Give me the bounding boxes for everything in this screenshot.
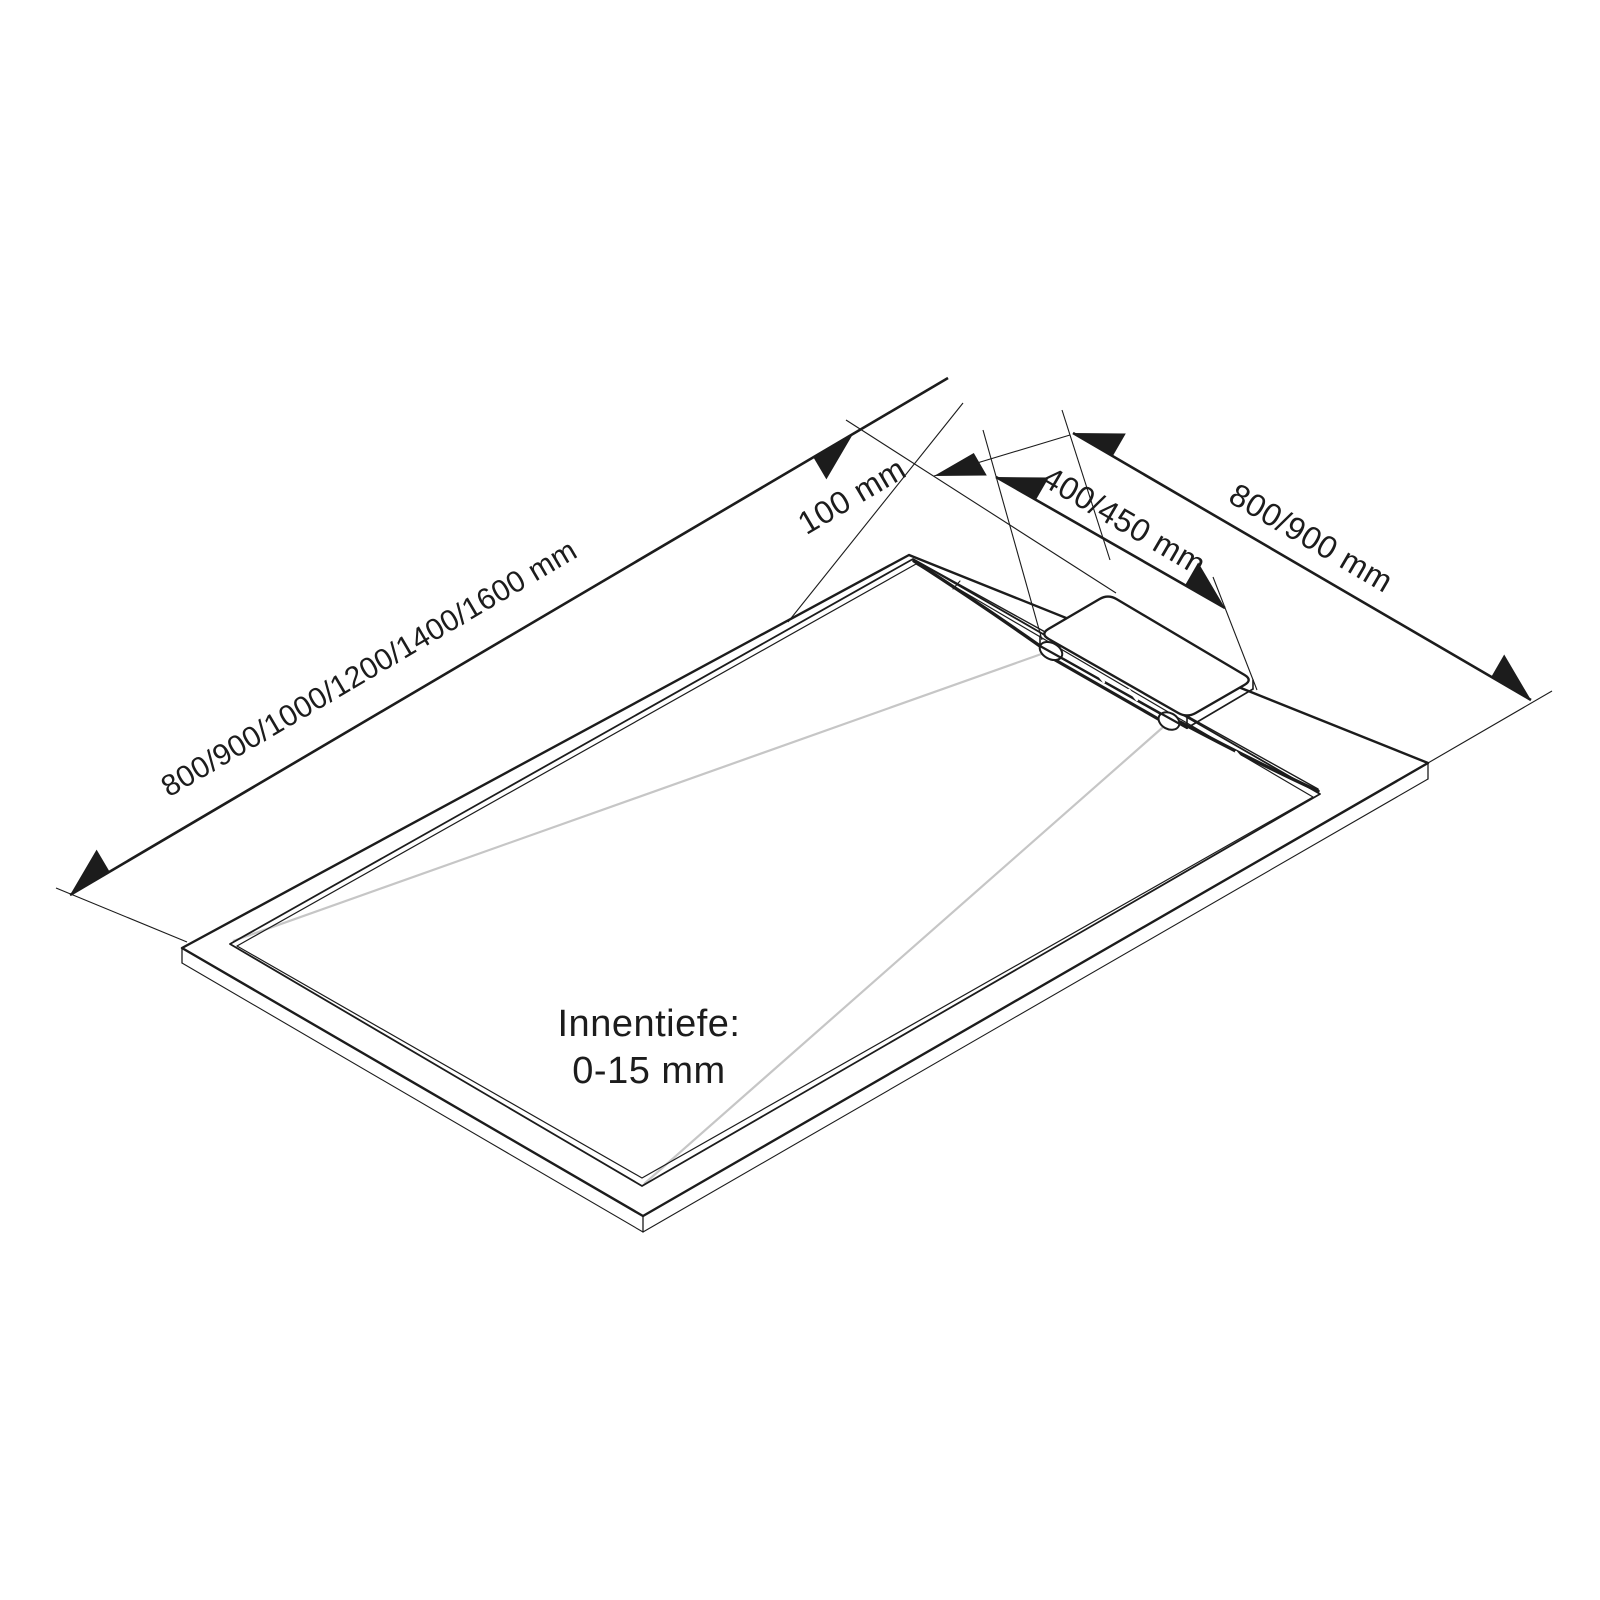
dim-label-drain-offset: 100 mm (791, 450, 911, 541)
tray-bottom-edge-right (643, 779, 1428, 1232)
drain-right-wing-lower-edge (1180, 722, 1318, 791)
arrow-width-right (1491, 655, 1531, 701)
ext-line-east-corner (1428, 691, 1552, 763)
dimension-arrowheads (70, 433, 1531, 895)
drain-cover-plate (1044, 597, 1248, 716)
arrow-length-north (813, 434, 853, 479)
dim-label-width: 800/900 mm (1223, 476, 1399, 599)
shower-tray-diagram: 800/900/1000/1200/1400/1600 mm 100 mm 40… (0, 0, 1600, 1600)
technical-drawing-page: 800/900/1000/1200/1400/1600 mm 100 mm 40… (0, 0, 1600, 1600)
ext-line-west-corner (56, 888, 187, 942)
inner-depth-note: Innentiefe: 0-15 mm (558, 1003, 741, 1092)
slope-fold-lines (233, 652, 1170, 1184)
arrow-width-left (1073, 433, 1126, 456)
dim-label-length: 800/900/1000/1200/1400/1600 mm (156, 534, 583, 804)
drain-left-wing-lower-edge (914, 561, 1047, 651)
extension-lines (56, 403, 1552, 942)
drain-right-wing-top-edge (1180, 712, 1318, 789)
fold-line-to-bottom-corner (644, 721, 1170, 1184)
label-inner-depth-title: Innentiefe: (558, 1003, 741, 1045)
dim-label-drain-position: 400/450 mm (1036, 459, 1212, 582)
dimension-lines (70, 378, 1531, 895)
label-inner-depth-value: 0-15 mm (572, 1050, 725, 1092)
drain-left-wing-top-edge (913, 559, 1047, 633)
arrow-length-west (70, 850, 110, 895)
arrow-offset-right (934, 453, 987, 476)
